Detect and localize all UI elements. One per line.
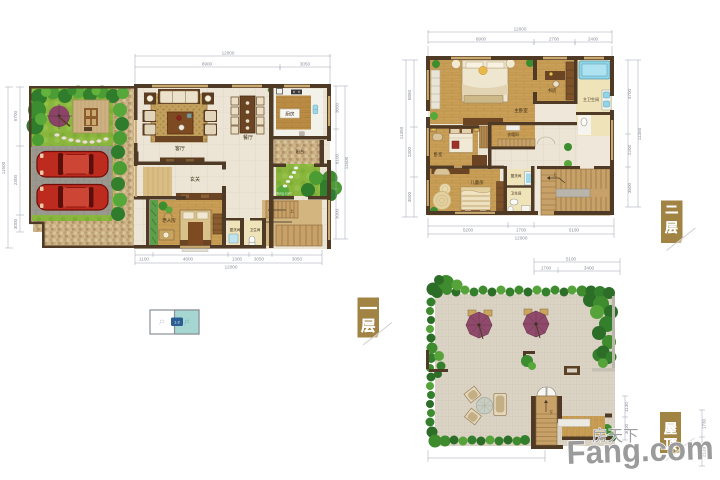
svg-text:3000: 3000	[335, 208, 340, 219]
svg-text:6100: 6100	[335, 153, 340, 164]
svg-text:12000: 12000	[222, 51, 235, 56]
svg-text:上: 上	[553, 171, 557, 177]
svg-text:2300: 2300	[13, 174, 18, 185]
svg-text:主卫生间: 主卫生间	[583, 96, 599, 102]
svg-text:5100: 5100	[566, 257, 577, 262]
svg-text:下: 下	[549, 410, 553, 415]
svg-text:3600: 3600	[335, 102, 340, 113]
svg-text:5200: 5200	[463, 228, 474, 233]
svg-text:上: 上	[290, 208, 294, 214]
svg-text:3000: 3000	[13, 218, 18, 229]
svg-text:主卧室: 主卧室	[514, 107, 528, 114]
svg-text:盥洗间: 盥洗间	[230, 227, 241, 232]
svg-text:客厅: 客厅	[175, 145, 185, 152]
svg-text:卧室: 卧室	[434, 151, 443, 158]
svg-text:老人房: 老人房	[162, 217, 176, 224]
svg-text:sofang.com: sofang.com	[273, 192, 292, 196]
svg-text:1730: 1730	[702, 418, 707, 429]
svg-text:1700: 1700	[541, 266, 552, 271]
svg-text:厨房: 厨房	[285, 111, 295, 118]
svg-text:2700: 2700	[549, 37, 560, 42]
svg-text:衣帽间: 衣帽间	[507, 132, 519, 137]
svg-text:3700: 3700	[627, 88, 632, 99]
svg-text:卫生间: 卫生间	[511, 191, 522, 196]
svg-text:12000: 12000	[515, 236, 528, 241]
svg-text:层: 层	[361, 318, 376, 335]
svg-text:12000: 12000	[514, 27, 527, 32]
svg-text:11500: 11500	[344, 156, 349, 169]
svg-text:层: 层	[665, 220, 678, 235]
svg-text:书房: 书房	[548, 87, 557, 94]
svg-text:Fang.com: Fang.com	[566, 429, 714, 471]
svg-text:3050: 3050	[300, 62, 311, 67]
svg-text:11500: 11500	[1, 161, 6, 174]
svg-text:5190: 5190	[569, 228, 580, 233]
svg-text:3500: 3500	[407, 191, 412, 202]
svg-text:1100: 1100	[139, 257, 149, 262]
svg-text:3400: 3400	[584, 266, 595, 271]
svg-text:盥洗间: 盥洗间	[511, 173, 522, 178]
svg-text:11350: 11350	[399, 126, 404, 139]
svg-text:户: 户	[159, 319, 165, 327]
svg-text:儿童房: 儿童房	[470, 179, 484, 186]
svg-text:玄关: 玄关	[190, 176, 200, 183]
svg-text:2200: 2200	[627, 144, 632, 155]
svg-text:卫生间: 卫生间	[250, 227, 261, 232]
svg-text:3500: 3500	[627, 182, 632, 193]
svg-text:阳台: 阳台	[296, 148, 304, 155]
svg-text:3050: 3050	[292, 257, 303, 262]
svg-text:12000: 12000	[225, 265, 238, 270]
svg-text:11350: 11350	[637, 127, 642, 140]
svg-text:1700: 1700	[516, 228, 527, 233]
svg-text:1-2: 1-2	[174, 320, 181, 325]
svg-text:3050: 3050	[254, 257, 265, 262]
svg-text:5700: 5700	[13, 110, 18, 121]
svg-text:2300: 2300	[407, 146, 412, 157]
svg-text:8900: 8900	[202, 62, 213, 67]
svg-text:1130: 1130	[624, 402, 629, 412]
svg-text:6850: 6850	[407, 89, 412, 100]
svg-text:6900: 6900	[476, 37, 487, 42]
svg-text:1300: 1300	[232, 257, 243, 262]
svg-text:户: 户	[184, 319, 190, 327]
svg-text:4600: 4600	[183, 257, 194, 262]
svg-text:餐厅: 餐厅	[243, 134, 253, 141]
svg-text:2400: 2400	[588, 37, 599, 42]
